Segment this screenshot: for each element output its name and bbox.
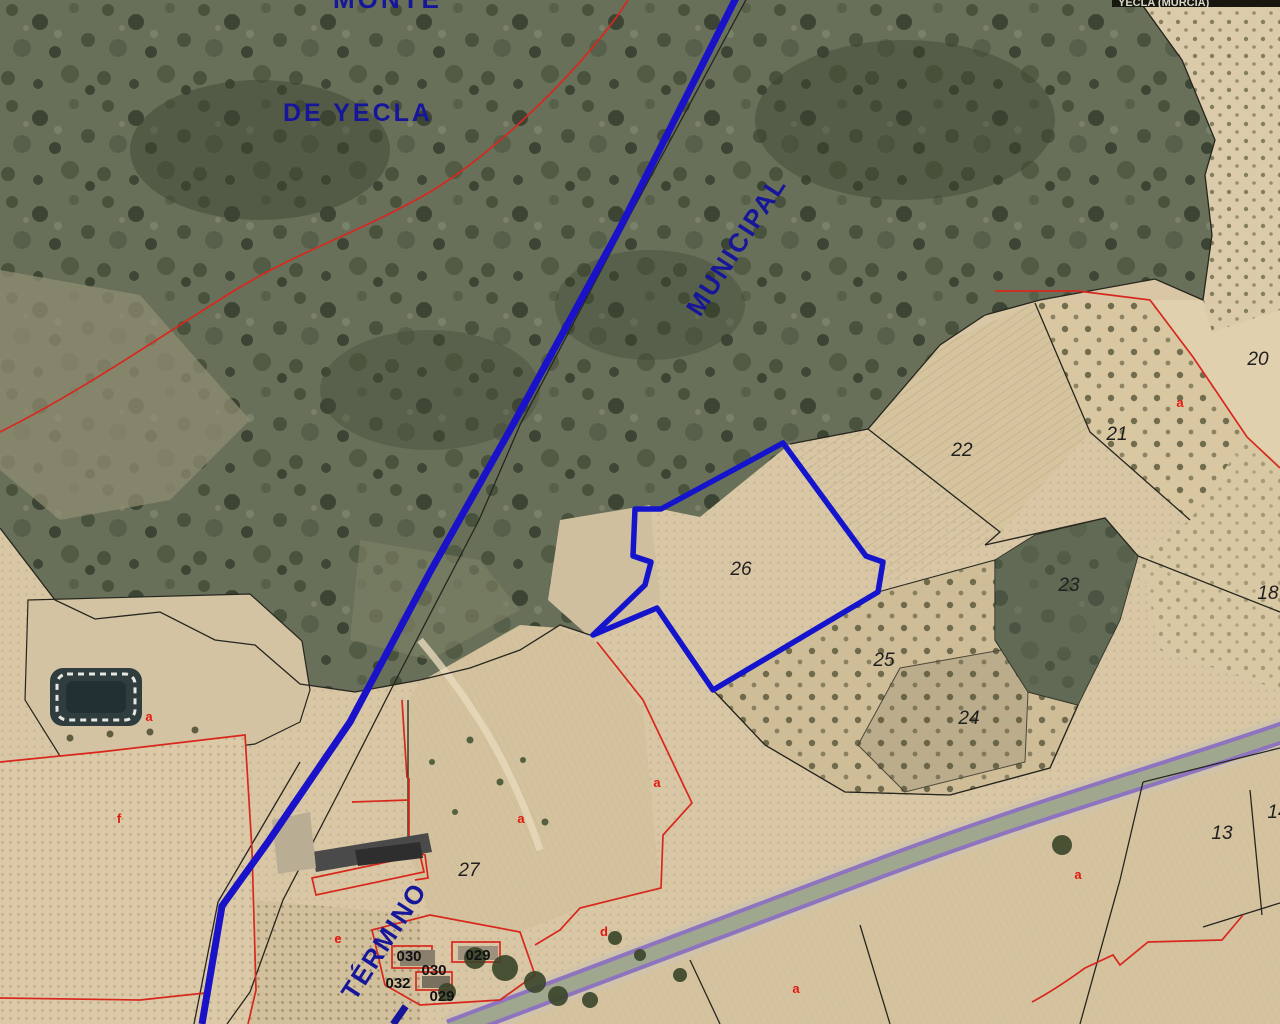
subparcel-e: e xyxy=(334,931,341,946)
code-029-b: 029 xyxy=(429,988,454,1005)
map-layers: MONTE DE YECLA MUNICIPAL TÉRMINO YECLA (… xyxy=(0,0,1280,1024)
parcel-label-20: 20 xyxy=(1246,349,1269,370)
cadastral-map-viewport[interactable]: MONTE DE YECLA MUNICIPAL TÉRMINO YECLA (… xyxy=(0,0,1280,1024)
subparcel-d: d xyxy=(600,924,608,939)
svg-text:YECLA (MURCIA): YECLA (MURCIA) xyxy=(1118,0,1210,9)
parcel-label-27: 27 xyxy=(457,860,481,881)
label-monte: MONTE xyxy=(333,0,442,14)
subparcel-a-4: a xyxy=(145,709,153,724)
scrub-shadow xyxy=(755,40,1055,200)
parcel-label-26: 26 xyxy=(729,559,752,580)
label-de-yecla: DE YECLA xyxy=(283,99,433,127)
subparcel-a-5: a xyxy=(1074,867,1082,882)
parcel-label-14: 14 xyxy=(1267,802,1280,823)
code-030-a: 030 xyxy=(396,948,421,965)
code-032: 032 xyxy=(385,975,410,992)
parcel-label-23: 23 xyxy=(1057,575,1080,596)
field-f-bottom-left xyxy=(0,727,256,1024)
parcel-label-22: 22 xyxy=(950,440,973,461)
subparcel-a-1: a xyxy=(1176,395,1184,410)
parcel-label-18: 18 xyxy=(1257,583,1279,604)
subparcel-a-2: a xyxy=(653,775,661,790)
subparcel-a-6: a xyxy=(792,981,800,996)
subparcel-f: f xyxy=(117,811,122,826)
reservoir-inner xyxy=(66,681,126,713)
parcel-label-13: 13 xyxy=(1211,823,1233,844)
parcel-label-25: 25 xyxy=(872,650,895,671)
code-029-a: 029 xyxy=(465,947,490,964)
code-030-b: 030 xyxy=(421,962,446,979)
parcel-label-21: 21 xyxy=(1105,424,1127,445)
subparcel-a-3: a xyxy=(517,811,525,826)
parcel-label-24: 24 xyxy=(957,708,979,729)
